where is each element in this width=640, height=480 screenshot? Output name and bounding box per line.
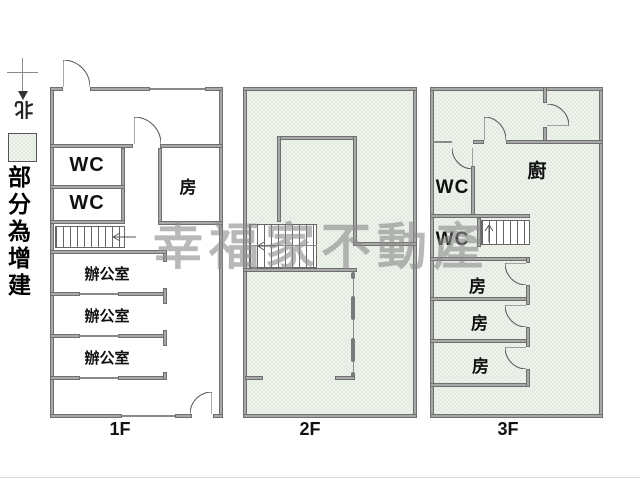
room-label: 房: [168, 173, 208, 198]
door-arc: [505, 263, 526, 285]
room-label-wc: WC: [60, 192, 114, 215]
wall: [506, 140, 603, 144]
north-label: 北: [12, 97, 36, 124]
wall: [175, 414, 192, 418]
wall: [118, 376, 166, 380]
door-arc: [63, 60, 90, 87]
wall: [163, 288, 167, 304]
room-label-wc: WC: [430, 177, 475, 199]
wall: [50, 87, 63, 91]
wall: [50, 250, 167, 254]
legend-caption: 部分為增建: [4, 164, 35, 299]
wall: [430, 339, 530, 343]
wall: [50, 376, 80, 380]
floorplan-canvas: 北 部分為增建 WC WC 房: [0, 0, 640, 480]
wall: [163, 372, 167, 380]
door-arc: [134, 117, 161, 144]
floor-label-3f: 3F: [483, 419, 533, 440]
partition-line: [353, 272, 354, 380]
window: [150, 88, 205, 90]
floor-label-1f: 1F: [95, 419, 145, 440]
wall: [50, 292, 80, 296]
wall: [163, 330, 167, 346]
door-arc: [547, 104, 569, 126]
wall: [526, 327, 530, 347]
door-arc: [190, 392, 212, 414]
wall: [245, 376, 263, 380]
wall: [277, 136, 357, 140]
floor-label-2f: 2F: [285, 419, 335, 440]
wall: [430, 414, 603, 418]
wall: [526, 369, 530, 387]
wall: [205, 87, 223, 91]
wall: [599, 87, 603, 418]
window: [122, 415, 175, 417]
legend-addition-swatch: [8, 133, 37, 162]
wall: [335, 376, 355, 380]
wall: [50, 414, 122, 418]
partition-line: [80, 377, 118, 379]
wall: [213, 414, 223, 418]
partition-line: [80, 293, 118, 295]
wall: [50, 220, 125, 224]
wall: [526, 285, 530, 305]
window: [433, 141, 452, 143]
door-arc: [452, 148, 473, 169]
door-arc: [505, 305, 526, 327]
room-label-office: 辦公室: [57, 305, 157, 326]
partition-line: [80, 335, 118, 337]
north-arrow-shaft: [22, 58, 23, 92]
wall: [118, 334, 166, 338]
north-arrow-crossbar: [7, 72, 38, 73]
wall: [430, 87, 603, 91]
wall: [243, 87, 417, 91]
door-arc: [484, 117, 506, 140]
door-jamb: [351, 338, 355, 362]
wall: [160, 144, 223, 148]
stairs-direction-arrow: [106, 230, 138, 244]
wall: [430, 297, 530, 301]
wall: [50, 185, 125, 189]
wall: [90, 87, 150, 91]
room-label: 房: [453, 352, 508, 377]
wall: [430, 383, 530, 387]
watermark-text: 幸福家不動產: [153, 207, 489, 279]
wall: [473, 140, 484, 144]
wall: [543, 87, 547, 103]
room-label-office: 辦公室: [57, 347, 157, 368]
door-jamb: [351, 296, 355, 320]
wall: [50, 334, 80, 338]
room-label: 房: [452, 309, 507, 334]
door-arc: [505, 347, 526, 369]
bottom-divider: [0, 477, 640, 478]
room-label-wc: WC: [60, 154, 114, 177]
room-label-kitchen: 廚: [517, 156, 557, 183]
wall: [118, 292, 166, 296]
wall: [243, 414, 417, 418]
wall: [526, 257, 530, 263]
room-label-office: 辦公室: [57, 263, 157, 284]
